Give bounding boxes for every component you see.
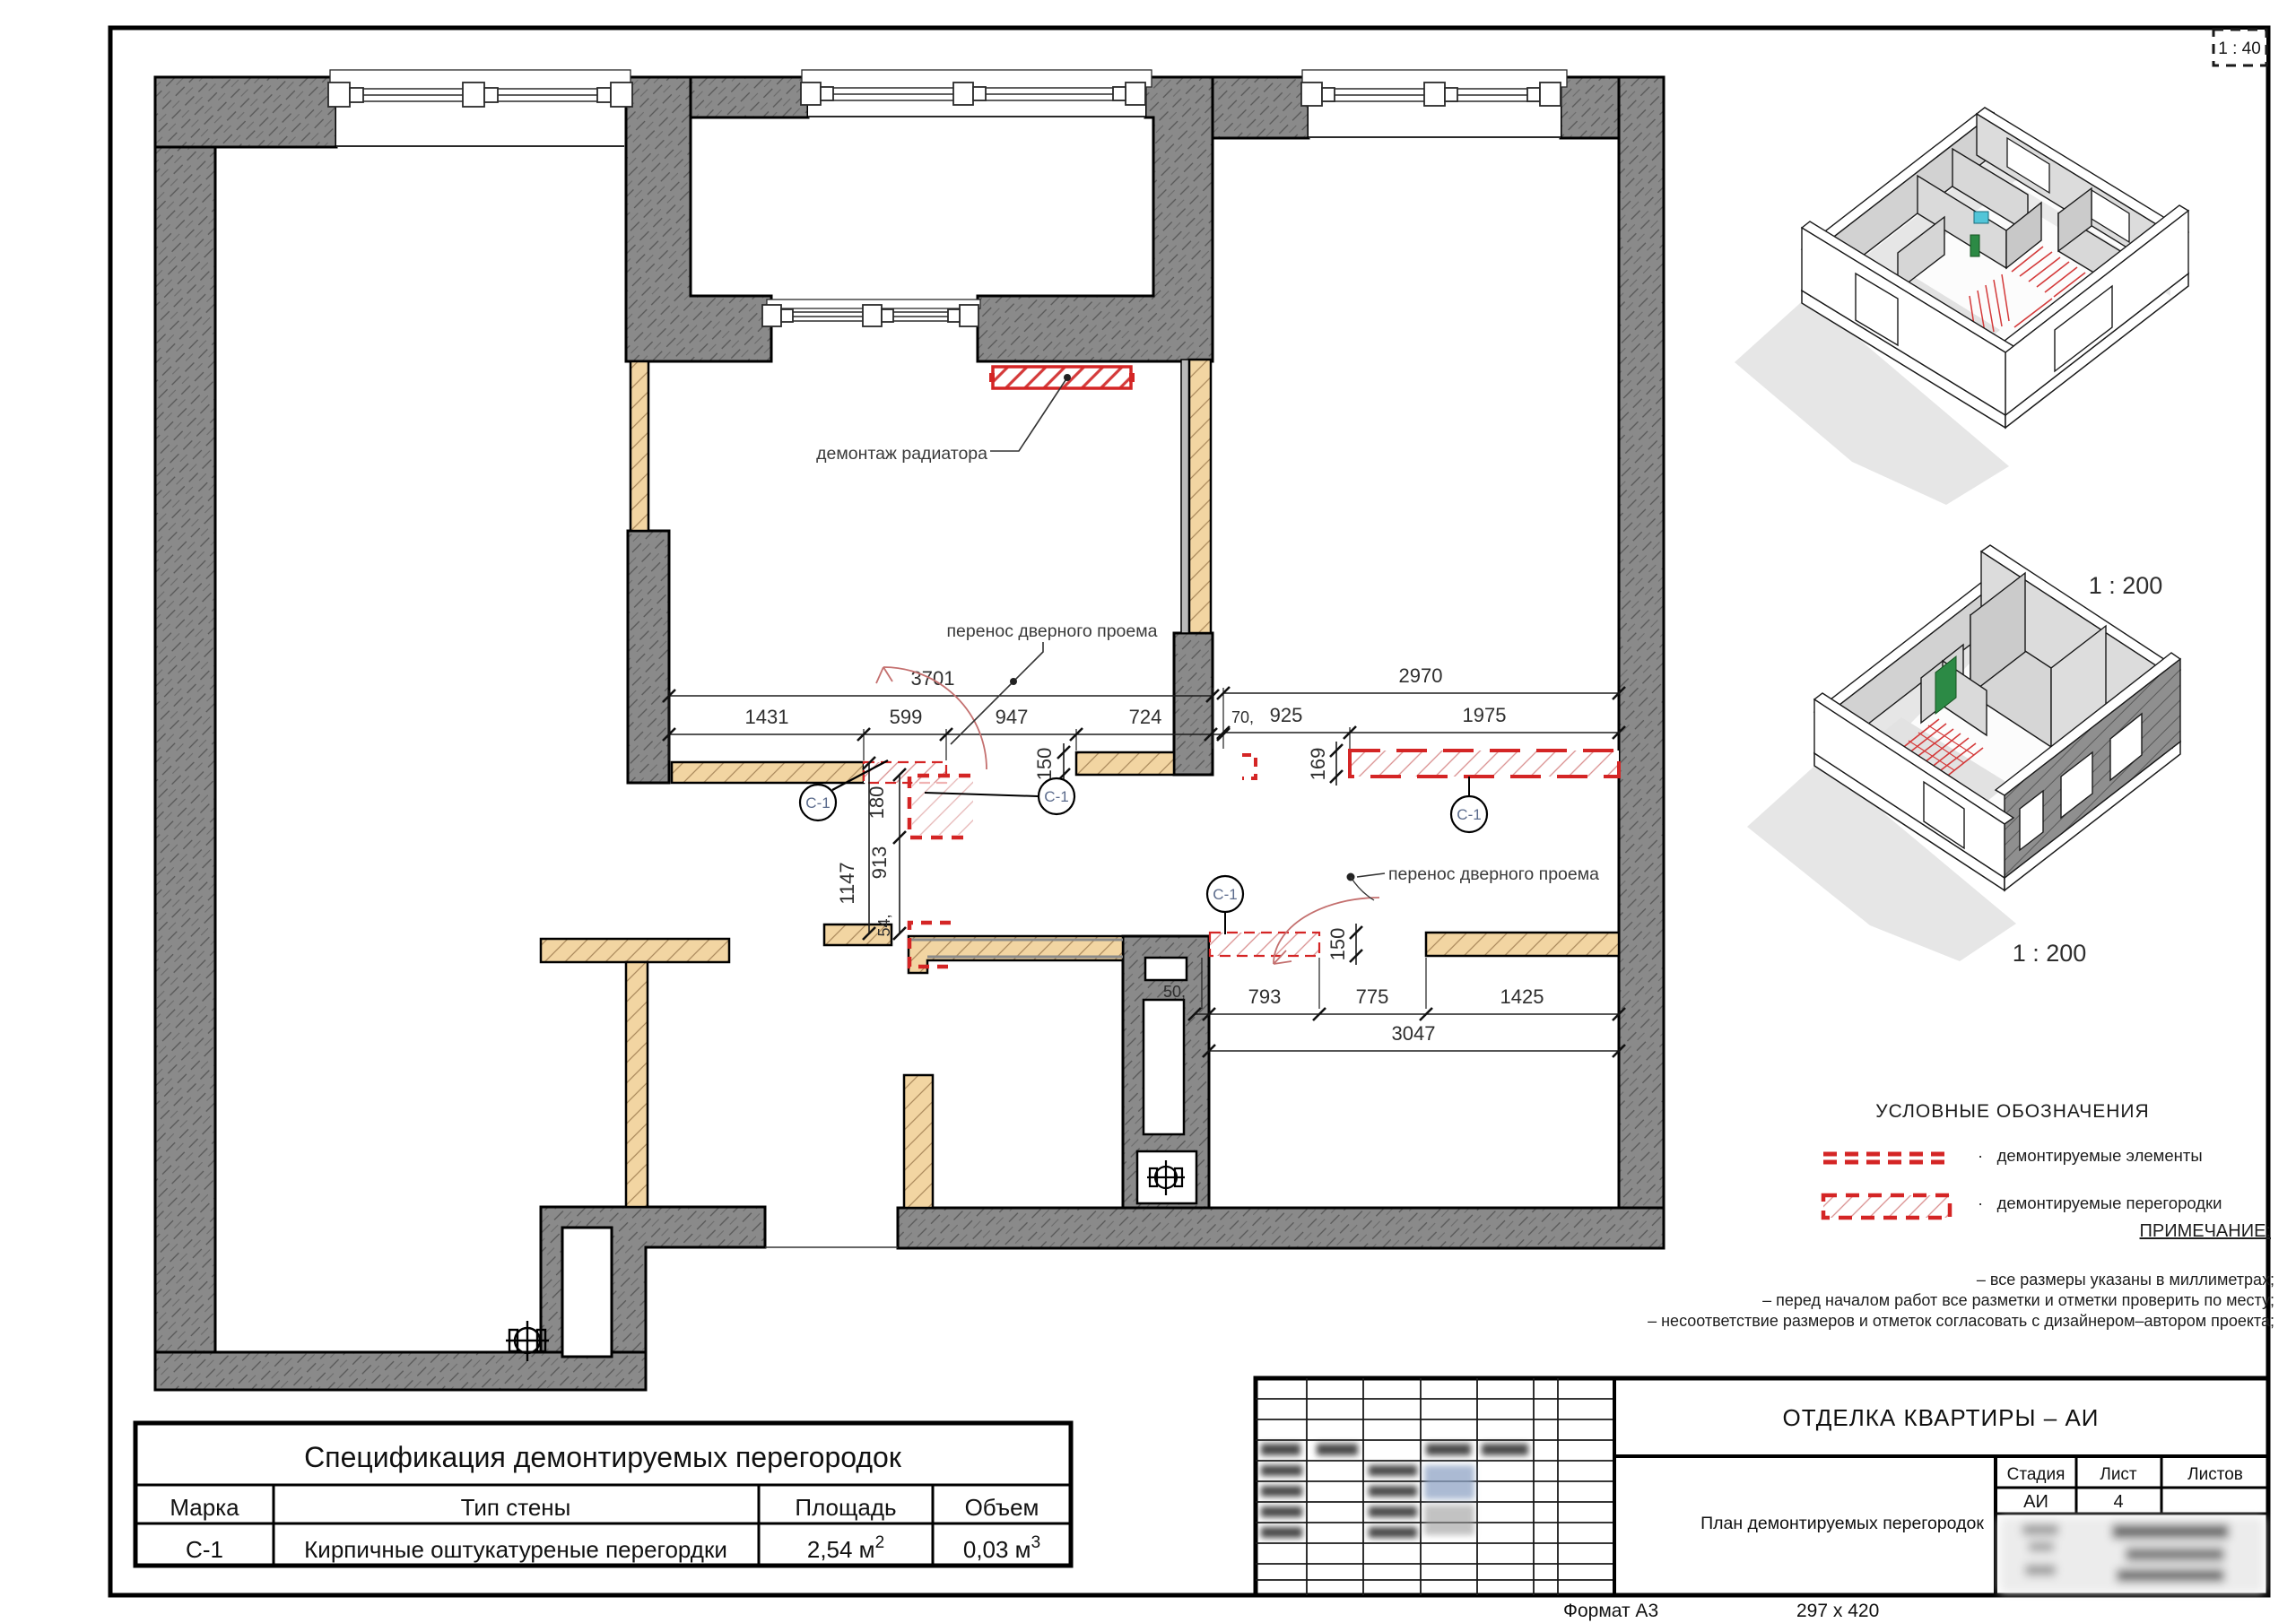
svg-text:1425: 1425 xyxy=(1500,985,1544,1008)
svg-text:169: 169 xyxy=(1307,748,1329,781)
svg-text:· демонтируемые перегородки: · демонтируемые перегородки xyxy=(1978,1193,2222,1212)
svg-text:Марка: Марка xyxy=(170,1494,239,1521)
svg-text:180: 180 xyxy=(865,786,888,820)
svg-text:793: 793 xyxy=(1248,985,1282,1008)
svg-text:54,: 54, xyxy=(875,914,893,936)
svg-text:947: 947 xyxy=(996,706,1029,728)
svg-text:913: 913 xyxy=(868,846,891,880)
svg-text:2970: 2970 xyxy=(1399,664,1443,687)
svg-text:– перед началом работ все разм: – перед началом работ все разметки и отм… xyxy=(1762,1291,2274,1309)
svg-text:Тип стены: Тип стены xyxy=(461,1494,571,1521)
svg-text:1147: 1147 xyxy=(836,862,858,904)
svg-text:Листов: Листов xyxy=(2187,1465,2243,1484)
svg-text:C-1: C-1 xyxy=(1044,788,1068,805)
svg-text:Стадия: Стадия xyxy=(2007,1465,2066,1484)
svg-text:4: 4 xyxy=(2113,1492,2123,1512)
svg-text:297 x 420: 297 x 420 xyxy=(1796,1601,1879,1621)
svg-text:перенос дверного проема: перенос дверного проема xyxy=(1388,864,1599,884)
svg-text:План демонтируемых перегородок: План демонтируемых перегородок xyxy=(1700,1514,1984,1533)
svg-text:C-1: C-1 xyxy=(1213,886,1237,903)
svg-text:ОТДЕЛКА КВАРТИРЫ – АИ: ОТДЕЛКА КВАРТИРЫ – АИ xyxy=(1783,1404,2100,1431)
svg-text:C-1: C-1 xyxy=(1457,806,1481,823)
svg-text:Лист: Лист xyxy=(2100,1465,2137,1484)
svg-text:3701: 3701 xyxy=(911,667,955,690)
svg-text:3047: 3047 xyxy=(1392,1022,1436,1045)
svg-text:1431: 1431 xyxy=(745,706,789,728)
svg-text:2,54 м2: 2,54 м2 xyxy=(807,1533,884,1563)
svg-text:150: 150 xyxy=(1033,748,1056,781)
svg-text:перенос дверного проема: перенос дверного проема xyxy=(947,621,1158,641)
svg-text:775: 775 xyxy=(1356,985,1389,1008)
svg-text:Площадь: Площадь xyxy=(795,1494,896,1521)
svg-text:70,: 70, xyxy=(1231,708,1254,726)
svg-text:599: 599 xyxy=(890,706,923,728)
svg-text:1 : 200: 1 : 200 xyxy=(2013,940,2087,967)
svg-text:· демонтируемые элементы: · демонтируемые элементы xyxy=(1978,1146,2203,1165)
svg-text:– все размеры указаны в миллим: – все размеры указаны в миллиметрах; xyxy=(1977,1271,2274,1289)
svg-text:ПРИМЕЧАНИЕ:: ПРИМЕЧАНИЕ: xyxy=(2140,1221,2271,1241)
svg-text:Объем: Объем xyxy=(965,1494,1039,1521)
svg-text:Формат А3: Формат А3 xyxy=(1563,1601,1658,1621)
svg-text:1 : 200: 1 : 200 xyxy=(2089,572,2163,599)
svg-text:Кирпичные оштукатуреные перего: Кирпичные оштукатуреные перегордки xyxy=(304,1536,727,1563)
svg-text:925: 925 xyxy=(1270,704,1303,726)
svg-text:УСЛОВНЫЕ ОБОЗНАЧЕНИЯ: УСЛОВНЫЕ ОБОЗНАЧЕНИЯ xyxy=(1875,1101,2149,1122)
svg-text:50,: 50, xyxy=(1163,983,1186,1001)
svg-text:1 : 40: 1 : 40 xyxy=(2218,39,2261,58)
svg-text:724: 724 xyxy=(1129,706,1162,728)
svg-text:демонтаж радиатора: демонтаж радиатора xyxy=(816,444,987,464)
svg-text:150: 150 xyxy=(1326,928,1349,961)
svg-text:С-1: С-1 xyxy=(186,1536,223,1563)
svg-text:0,03 м3: 0,03 м3 xyxy=(963,1533,1040,1563)
svg-text:C-1: C-1 xyxy=(805,794,830,811)
svg-text:АИ: АИ xyxy=(2023,1492,2048,1512)
svg-text:Спецификация демонтируемых пер: Спецификация демонтируемых перегородок xyxy=(304,1441,902,1473)
svg-text:– несоответствие размеров и от: – несоответствие размеров и отметок согл… xyxy=(1648,1312,2274,1330)
svg-text:1975: 1975 xyxy=(1463,704,1507,726)
